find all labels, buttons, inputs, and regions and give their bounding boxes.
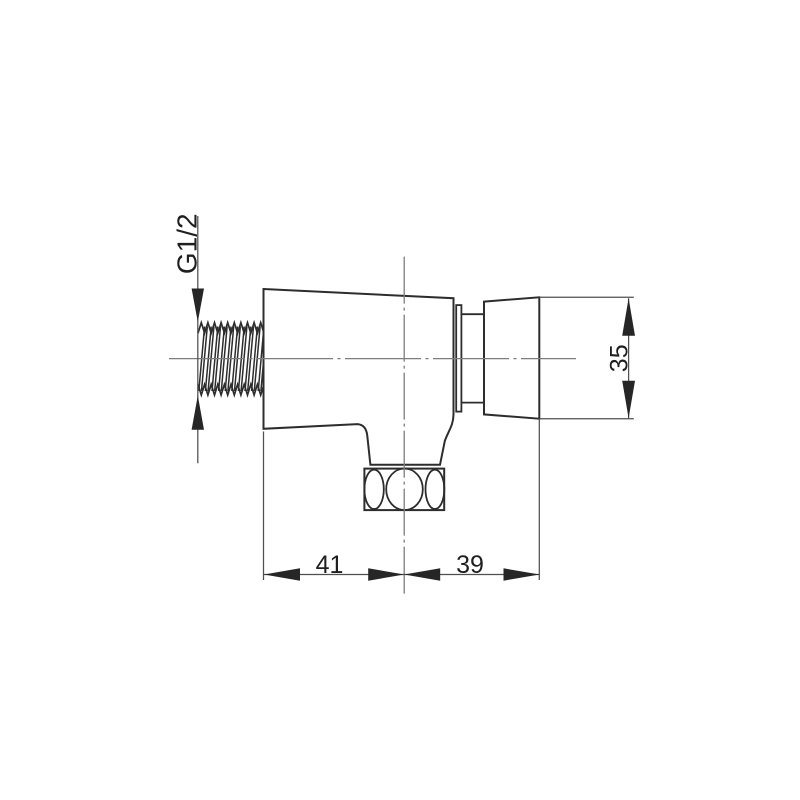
svg-text:41: 41 <box>316 551 344 579</box>
svg-text:39: 39 <box>456 551 484 579</box>
svg-text:G1/2: G1/2 <box>172 213 203 274</box>
svg-text:35: 35 <box>605 344 633 372</box>
